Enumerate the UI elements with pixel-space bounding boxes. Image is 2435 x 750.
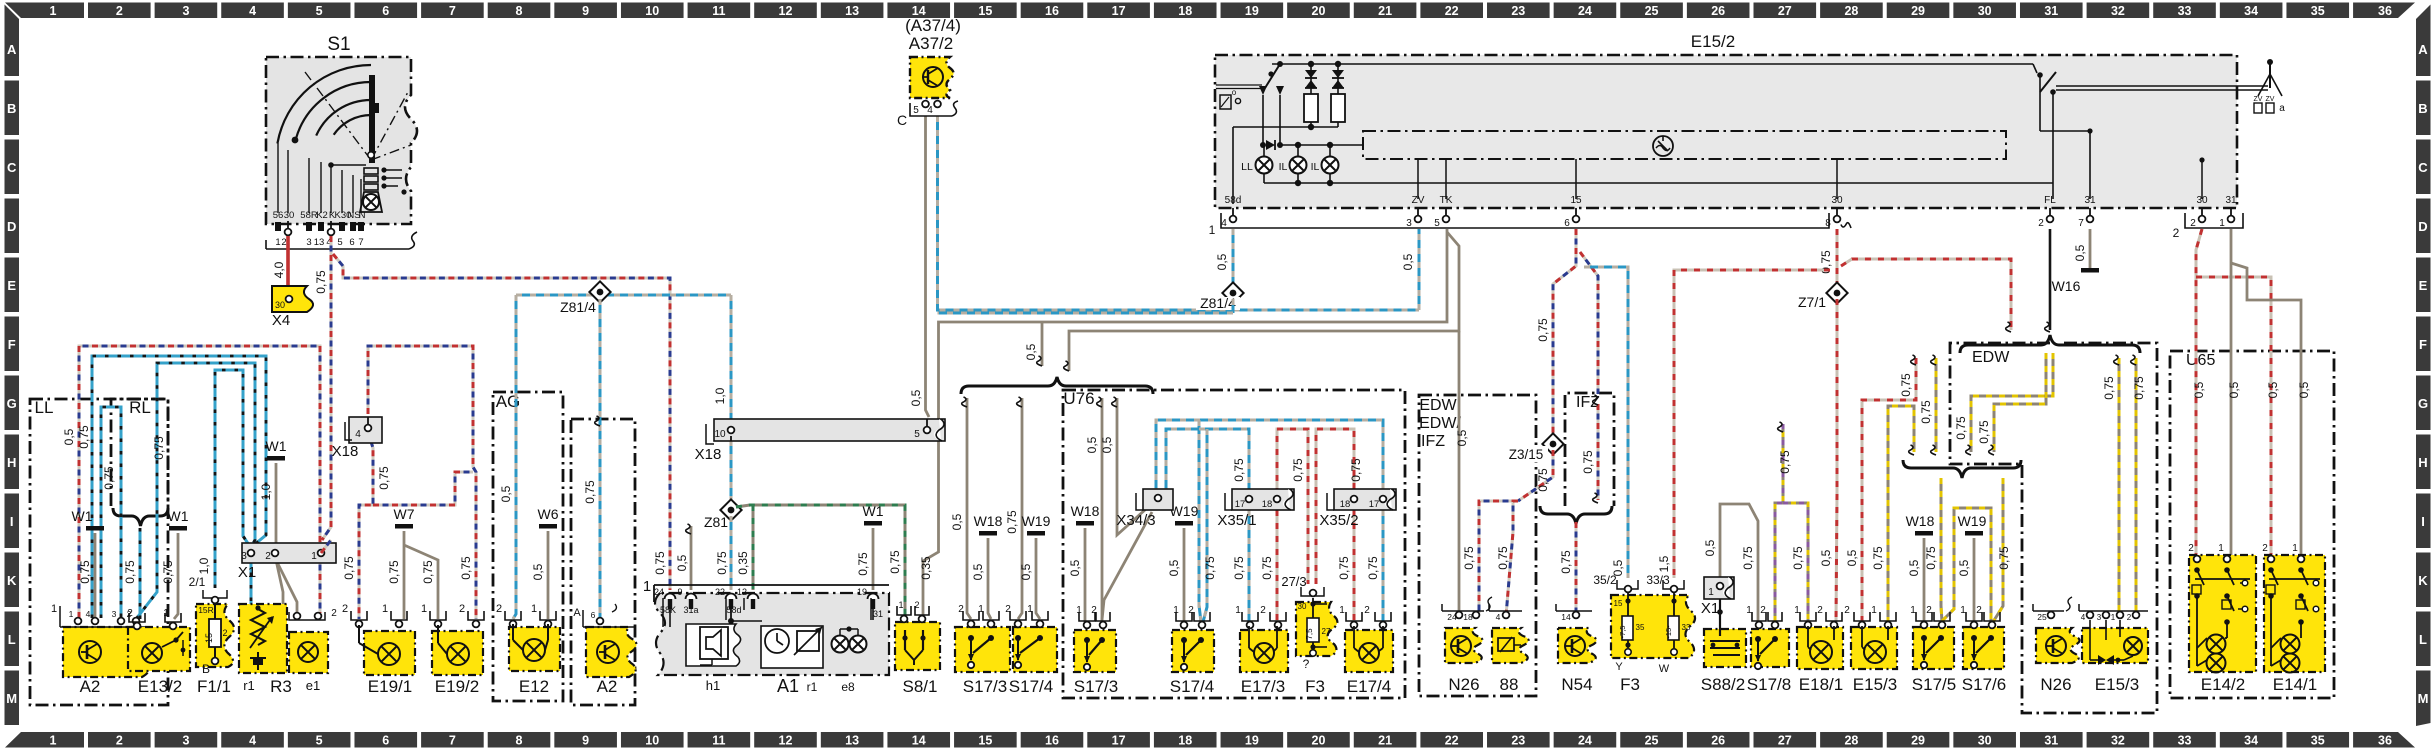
svg-text:0,75: 0,75	[856, 552, 870, 576]
svg-text:0,75: 0,75	[2132, 376, 2146, 400]
svg-text:W19: W19	[1022, 513, 1051, 529]
svg-text:F: F	[2419, 337, 2427, 352]
svg-text:6: 6	[591, 610, 596, 620]
svg-text:1: 1	[2218, 543, 2224, 554]
svg-text:X18: X18	[695, 446, 722, 463]
svg-text:0,75: 0,75	[102, 466, 116, 490]
svg-text:24: 24	[654, 587, 664, 597]
svg-text:2: 2	[914, 600, 919, 610]
svg-text:M: M	[6, 691, 17, 706]
svg-text:M: M	[2418, 691, 2429, 706]
svg-text:2: 2	[496, 603, 502, 615]
svg-text:27/3: 27/3	[1281, 574, 1306, 589]
svg-text:15R: 15R	[198, 605, 214, 615]
svg-text:5: 5	[316, 734, 323, 748]
svg-text:I: I	[10, 514, 14, 529]
svg-text:K: K	[7, 573, 17, 588]
svg-text:1: 1	[531, 603, 537, 615]
svg-text:A: A	[7, 42, 17, 57]
svg-text:23: 23	[1511, 734, 1525, 748]
svg-text:1,0: 1,0	[713, 387, 727, 404]
svg-text:26: 26	[1711, 734, 1725, 748]
svg-text:?: ?	[1303, 657, 1310, 671]
svg-text:0,5: 0,5	[2297, 381, 2311, 398]
svg-text:27: 27	[1778, 734, 1792, 748]
svg-text:0,5: 0,5	[971, 563, 985, 580]
svg-text:15: 15	[1614, 599, 1623, 608]
svg-text:C: C	[7, 160, 17, 175]
svg-text:31: 31	[873, 609, 883, 619]
svg-text:0,5: 0,5	[499, 485, 513, 502]
svg-text:27: 27	[1778, 4, 1792, 18]
svg-text:0,75: 0,75	[1232, 458, 1246, 482]
svg-text:20: 20	[1312, 4, 1326, 18]
svg-text:A2: A2	[597, 677, 618, 696]
svg-text:4: 4	[355, 429, 361, 440]
svg-text:27: 27	[1322, 627, 1331, 636]
svg-text:X35/1: X35/1	[1217, 512, 1256, 529]
svg-text:0,75: 0,75	[1899, 373, 1913, 397]
svg-text:3: 3	[182, 4, 189, 18]
svg-text:31: 31	[2044, 734, 2058, 748]
svg-text:EDW/: EDW/	[1419, 415, 1461, 432]
svg-text:Z7/1: Z7/1	[1798, 294, 1826, 310]
svg-text:2: 2	[958, 604, 964, 615]
svg-text:R3: R3	[270, 677, 292, 696]
svg-text:3: 3	[241, 551, 247, 562]
svg-text:2: 2	[1364, 605, 1370, 616]
svg-text:0,75: 0,75	[1919, 400, 1933, 424]
svg-text:30: 30	[275, 300, 285, 310]
svg-text:0,75: 0,75	[459, 556, 473, 580]
svg-text:3: 3	[306, 237, 311, 248]
svg-text:Z81/4: Z81/4	[1200, 295, 1236, 311]
svg-text:E17/3: E17/3	[1241, 677, 1285, 696]
svg-text:29: 29	[1911, 734, 1925, 748]
svg-text:2: 2	[116, 734, 123, 748]
svg-text:28: 28	[1844, 4, 1858, 18]
svg-text:33: 33	[2178, 4, 2192, 18]
svg-text:0,5: 0,5	[1024, 343, 1038, 360]
svg-text:N26: N26	[2040, 675, 2071, 694]
svg-text:9: 9	[677, 587, 682, 597]
svg-text:1,5: 1,5	[1657, 555, 1671, 572]
svg-text:W16: W16	[2052, 278, 2081, 294]
svg-text:22: 22	[715, 587, 725, 597]
svg-text:C: C	[897, 112, 907, 128]
svg-text:0,75: 0,75	[377, 466, 391, 490]
svg-text:Z81: Z81	[704, 514, 728, 530]
svg-text:31: 31	[2084, 195, 2096, 206]
svg-text:h1: h1	[706, 678, 720, 693]
svg-text:IFZ: IFZ	[1421, 433, 1445, 450]
svg-text:0,5: 0,5	[1819, 549, 1833, 566]
svg-text:10: 10	[714, 429, 726, 440]
svg-text:0,75: 0,75	[123, 560, 137, 584]
svg-text:0,5: 0,5	[1085, 436, 1099, 453]
svg-text:r1: r1	[243, 678, 255, 693]
svg-text:D: D	[7, 219, 16, 234]
svg-text:1: 1	[163, 608, 169, 619]
svg-text:B: B	[2418, 101, 2427, 116]
svg-text:32: 32	[2111, 734, 2125, 748]
svg-text:2: 2	[2038, 218, 2044, 229]
svg-text:0,75: 0,75	[421, 560, 435, 584]
svg-text:E14/1: E14/1	[2273, 675, 2317, 694]
svg-text:W18: W18	[1071, 503, 1100, 519]
svg-text:W1: W1	[266, 438, 287, 454]
svg-text:S17/5: S17/5	[1912, 675, 1956, 694]
svg-text:18: 18	[1178, 4, 1192, 18]
svg-text:0,5: 0,5	[531, 563, 545, 580]
svg-text:1: 1	[1235, 605, 1241, 616]
svg-text:A1: A1	[777, 676, 799, 696]
svg-text:LL: LL	[1241, 161, 1253, 173]
svg-text:0,75: 0,75	[1260, 556, 1274, 580]
svg-text:0,75: 0,75	[1291, 458, 1305, 482]
svg-text:0,75: 0,75	[583, 480, 597, 504]
svg-text:X35/2: X35/2	[1319, 512, 1358, 529]
svg-text:35: 35	[1636, 623, 1645, 632]
svg-text:5: 5	[913, 105, 919, 116]
svg-text:34: 34	[2244, 4, 2258, 18]
svg-text:S1: S1	[327, 34, 350, 55]
svg-text:22: 22	[1445, 734, 1459, 748]
svg-text:18: 18	[1178, 734, 1192, 748]
svg-text:E19/2: E19/2	[435, 677, 479, 696]
svg-text:4: 4	[86, 609, 91, 619]
svg-text:9: 9	[582, 4, 589, 18]
svg-text:0,75: 0,75	[77, 425, 91, 449]
svg-text:W19: W19	[1170, 503, 1199, 519]
svg-text:0,5: 0,5	[1215, 253, 1229, 270]
svg-text:2: 2	[2188, 543, 2194, 554]
svg-text:33/3: 33/3	[1646, 573, 1670, 587]
svg-text:W18: W18	[974, 513, 1003, 529]
svg-text:21: 21	[1378, 4, 1392, 18]
svg-text:2: 2	[459, 603, 465, 615]
svg-text:0,75: 0,75	[1203, 556, 1217, 580]
svg-text:0,75: 0,75	[1559, 550, 1573, 574]
svg-text:A2: A2	[80, 677, 101, 696]
svg-text:S17/4: S17/4	[1009, 677, 1053, 696]
svg-text:15: 15	[978, 734, 992, 748]
svg-text:25: 25	[2037, 612, 2047, 622]
svg-text:S88/2: S88/2	[1701, 675, 1745, 694]
svg-text:20: 20	[1312, 734, 1326, 748]
svg-text:2: 2	[1260, 605, 1266, 616]
svg-text:X1: X1	[238, 564, 256, 581]
svg-text:15: 15	[204, 633, 214, 643]
svg-text:S17/4: S17/4	[1170, 677, 1214, 696]
svg-text:e1: e1	[306, 678, 320, 693]
svg-text:N54: N54	[1561, 675, 1592, 694]
svg-text:29: 29	[1911, 4, 1925, 18]
svg-text:1: 1	[1027, 604, 1033, 615]
svg-text:-7,5: -7,5	[1618, 626, 1627, 639]
svg-text:4: 4	[927, 105, 933, 116]
svg-text:31a: 31a	[683, 605, 698, 615]
svg-text:A37/2: A37/2	[909, 34, 953, 53]
svg-text:1: 1	[1871, 605, 1877, 616]
svg-text:E15/2: E15/2	[1691, 32, 1735, 51]
svg-text:0,75: 0,75	[715, 551, 729, 575]
svg-text:1: 1	[1910, 605, 1916, 616]
svg-text:1: 1	[978, 604, 984, 615]
svg-text:5: 5	[337, 237, 342, 248]
svg-text:0,75: 0,75	[387, 560, 401, 584]
svg-text:L: L	[2419, 632, 2427, 647]
svg-text:Y: Y	[1615, 661, 1623, 673]
svg-text:2: 2	[281, 237, 286, 248]
svg-text:G: G	[7, 396, 17, 411]
svg-text:0,75: 0,75	[1924, 546, 1938, 570]
svg-text:4: 4	[249, 734, 256, 748]
svg-text:17: 17	[1112, 4, 1126, 18]
svg-text:0,35: 0,35	[736, 551, 750, 575]
svg-text:2: 2	[1844, 605, 1850, 616]
svg-text:17: 17	[1235, 499, 1246, 510]
svg-text:2: 2	[2262, 543, 2268, 554]
svg-text:24: 24	[1578, 734, 1592, 748]
svg-text:S8/1: S8/1	[903, 677, 938, 696]
svg-text:2: 2	[116, 4, 123, 18]
svg-text:LL: LL	[35, 398, 54, 417]
svg-text:0,5: 0,5	[1703, 539, 1717, 556]
svg-text:2: 2	[1005, 604, 1011, 615]
svg-text:1: 1	[382, 603, 388, 615]
svg-text:24: 24	[1447, 612, 1457, 622]
svg-text:7,5: 7,5	[1305, 628, 1314, 640]
svg-text:W: W	[1659, 663, 1670, 675]
svg-text:0,75: 0,75	[1791, 546, 1805, 570]
svg-text:0,5: 0,5	[62, 428, 76, 445]
svg-text:E15/3: E15/3	[1853, 675, 1897, 694]
svg-text:0,75: 0,75	[1366, 556, 1380, 580]
svg-text:e8: e8	[841, 680, 855, 694]
svg-text:o: o	[1232, 88, 1237, 97]
svg-text:X18: X18	[332, 443, 359, 460]
svg-text:0,75: 0,75	[2102, 376, 2116, 400]
svg-text:0,75: 0,75	[1997, 546, 2011, 570]
svg-text:1: 1	[2219, 218, 2225, 229]
svg-text:24: 24	[1578, 4, 1592, 18]
svg-text:F3: F3	[1305, 677, 1325, 696]
svg-text:30: 30	[1978, 734, 1992, 748]
svg-text:33: 33	[2178, 734, 2192, 748]
svg-text:F1/1: F1/1	[197, 677, 231, 696]
svg-text:0,75: 0,75	[78, 560, 92, 584]
svg-text:18: 18	[1463, 612, 1473, 622]
svg-text:30: 30	[1978, 4, 1992, 18]
svg-text:W1: W1	[168, 508, 189, 524]
svg-text:35/2: 35/2	[1593, 573, 1617, 587]
svg-text:11: 11	[712, 734, 725, 748]
svg-text:0,75: 0,75	[1778, 450, 1792, 474]
svg-text:C: C	[2418, 160, 2428, 175]
svg-text:0,75: 0,75	[161, 560, 175, 584]
svg-text:14: 14	[1561, 612, 1571, 622]
svg-text:9: 9	[582, 734, 589, 748]
svg-text:14: 14	[912, 734, 926, 748]
svg-text:W7: W7	[394, 506, 415, 522]
svg-text:U65: U65	[2186, 352, 2215, 369]
svg-text:IL: IL	[1279, 161, 1288, 173]
svg-text:0,75: 0,75	[1005, 510, 1019, 534]
svg-text:33: 33	[1682, 623, 1691, 632]
svg-text:5: 5	[1434, 218, 1440, 229]
svg-text:2: 2	[1091, 605, 1097, 616]
svg-text:0,75: 0,75	[314, 270, 328, 294]
svg-text:H: H	[7, 455, 16, 470]
svg-text:0,75: 0,75	[342, 556, 356, 580]
svg-text:F3: F3	[1620, 675, 1640, 694]
svg-text:1: 1	[275, 237, 280, 248]
svg-text:0,75: 0,75	[888, 550, 902, 574]
svg-text:7: 7	[358, 237, 363, 248]
svg-text:Z81/4: Z81/4	[560, 299, 596, 315]
svg-text:1: 1	[1339, 605, 1345, 616]
svg-text:0,5: 0,5	[950, 513, 964, 530]
svg-text:2: 2	[1817, 605, 1823, 616]
svg-text:E18/1: E18/1	[1799, 675, 1843, 694]
svg-text:(A37/4): (A37/4)	[905, 16, 961, 35]
svg-text:15: 15	[978, 4, 992, 18]
svg-text:4: 4	[1221, 218, 1227, 229]
svg-text:0,5: 0,5	[1845, 549, 1859, 566]
svg-text:1: 1	[2111, 613, 2116, 622]
svg-text:18: 18	[1340, 499, 1351, 510]
svg-text:1: 1	[1173, 605, 1179, 616]
svg-text:0,5: 0,5	[2073, 244, 2087, 261]
svg-text:17: 17	[1369, 499, 1380, 510]
svg-text:1: 1	[51, 603, 57, 615]
svg-text:K: K	[2418, 573, 2428, 588]
svg-text:7: 7	[2078, 218, 2084, 229]
svg-text:RL: RL	[129, 398, 151, 417]
svg-text:1: 1	[1708, 587, 1714, 598]
svg-text:U76: U76	[1063, 389, 1094, 408]
svg-text:1: 1	[50, 734, 57, 748]
svg-text:16: 16	[1045, 734, 1059, 748]
svg-text:10: 10	[645, 734, 659, 748]
svg-text:12: 12	[779, 4, 793, 18]
svg-text:B: B	[202, 662, 210, 676]
svg-text:B: B	[7, 101, 16, 116]
svg-text:4,0: 4,0	[272, 261, 286, 278]
svg-text:N26: N26	[1448, 675, 1479, 694]
svg-text:30: 30	[284, 210, 295, 221]
svg-text:0,35: 0,35	[919, 556, 933, 580]
svg-text:4: 4	[249, 4, 256, 18]
svg-text:26: 26	[1711, 4, 1725, 18]
svg-text:7: 7	[449, 4, 456, 18]
svg-text:E12: E12	[519, 677, 549, 696]
svg-text:13: 13	[845, 4, 859, 18]
svg-text:13: 13	[314, 237, 325, 248]
svg-text:5: 5	[914, 429, 920, 440]
svg-text:0,75: 0,75	[1349, 458, 1363, 482]
svg-text:N: N	[359, 210, 366, 221]
svg-text:A: A	[2418, 42, 2428, 57]
svg-text:58d: 58d	[726, 605, 741, 615]
svg-text:E19/1: E19/1	[368, 677, 412, 696]
svg-text:0,5: 0,5	[1167, 559, 1181, 576]
svg-text:6: 6	[349, 237, 354, 248]
svg-text:8: 8	[1825, 218, 1831, 229]
svg-text:3: 3	[2097, 613, 2102, 622]
svg-text:0,5: 0,5	[675, 554, 689, 571]
svg-text:6: 6	[1564, 218, 1570, 229]
svg-text:12: 12	[737, 587, 747, 597]
svg-text:0,75: 0,75	[1232, 556, 1246, 580]
svg-text:1: 1	[421, 603, 427, 615]
svg-text:X1: X1	[1701, 600, 1719, 617]
svg-text:5: 5	[316, 4, 323, 18]
svg-text:EDW: EDW	[1419, 397, 1457, 414]
svg-text:2: 2	[1760, 605, 1766, 616]
svg-text:S17/3: S17/3	[963, 677, 1007, 696]
svg-text:58d: 58d	[1225, 195, 1242, 206]
svg-text:3: 3	[1406, 218, 1412, 229]
svg-text:56: 56	[273, 210, 284, 221]
svg-text:6: 6	[382, 734, 389, 748]
svg-text:2/1: 2/1	[189, 575, 206, 589]
svg-text:0,5: 0,5	[2192, 381, 2206, 398]
svg-text:3: 3	[112, 609, 117, 619]
svg-text:31: 31	[2225, 195, 2237, 206]
svg-text:r1: r1	[807, 680, 818, 694]
svg-text:1: 1	[1960, 605, 1966, 616]
svg-text:2: 2	[2190, 218, 2196, 229]
svg-text:0,5: 0,5	[1068, 559, 1082, 576]
svg-text:11: 11	[712, 4, 725, 18]
svg-text:31: 31	[2044, 4, 2058, 18]
svg-text:W1: W1	[72, 508, 93, 524]
svg-text:0,75: 0,75	[1581, 450, 1595, 474]
svg-text:36: 36	[2378, 734, 2392, 748]
svg-text:A: A	[573, 607, 581, 619]
svg-text:1: 1	[2292, 543, 2298, 554]
svg-text:1: 1	[69, 609, 74, 619]
svg-text:30: 30	[2196, 195, 2208, 206]
svg-text:H: H	[2418, 455, 2427, 470]
svg-text:G: G	[2418, 396, 2428, 411]
svg-text:IL: IL	[1311, 161, 1320, 173]
svg-text:TK: TK	[1440, 195, 1453, 206]
svg-text:3: 3	[182, 734, 189, 748]
svg-text:X34/3: X34/3	[1116, 512, 1155, 529]
svg-text:1: 1	[1076, 605, 1082, 616]
svg-text:E14/2: E14/2	[2201, 675, 2245, 694]
svg-text:2: 2	[331, 608, 337, 619]
svg-text:K2: K2	[316, 210, 328, 221]
svg-text:W19: W19	[1958, 513, 1987, 529]
svg-text:Z3/15: Z3/15	[1509, 447, 1544, 462]
svg-text:E13/2: E13/2	[138, 677, 182, 696]
svg-text:EDW: EDW	[1972, 349, 2010, 366]
svg-text:15: 15	[1570, 195, 1582, 206]
svg-text:0,75: 0,75	[1871, 546, 1885, 570]
svg-text:X4: X4	[272, 312, 290, 329]
svg-text:-15-: -15-	[1664, 625, 1673, 639]
svg-text:2: 2	[1926, 605, 1932, 616]
svg-text:1: 1	[1794, 605, 1800, 616]
svg-text:1: 1	[643, 578, 651, 595]
svg-text:a: a	[2279, 103, 2285, 114]
svg-text:36: 36	[2378, 4, 2392, 18]
svg-text:19: 19	[857, 587, 867, 597]
